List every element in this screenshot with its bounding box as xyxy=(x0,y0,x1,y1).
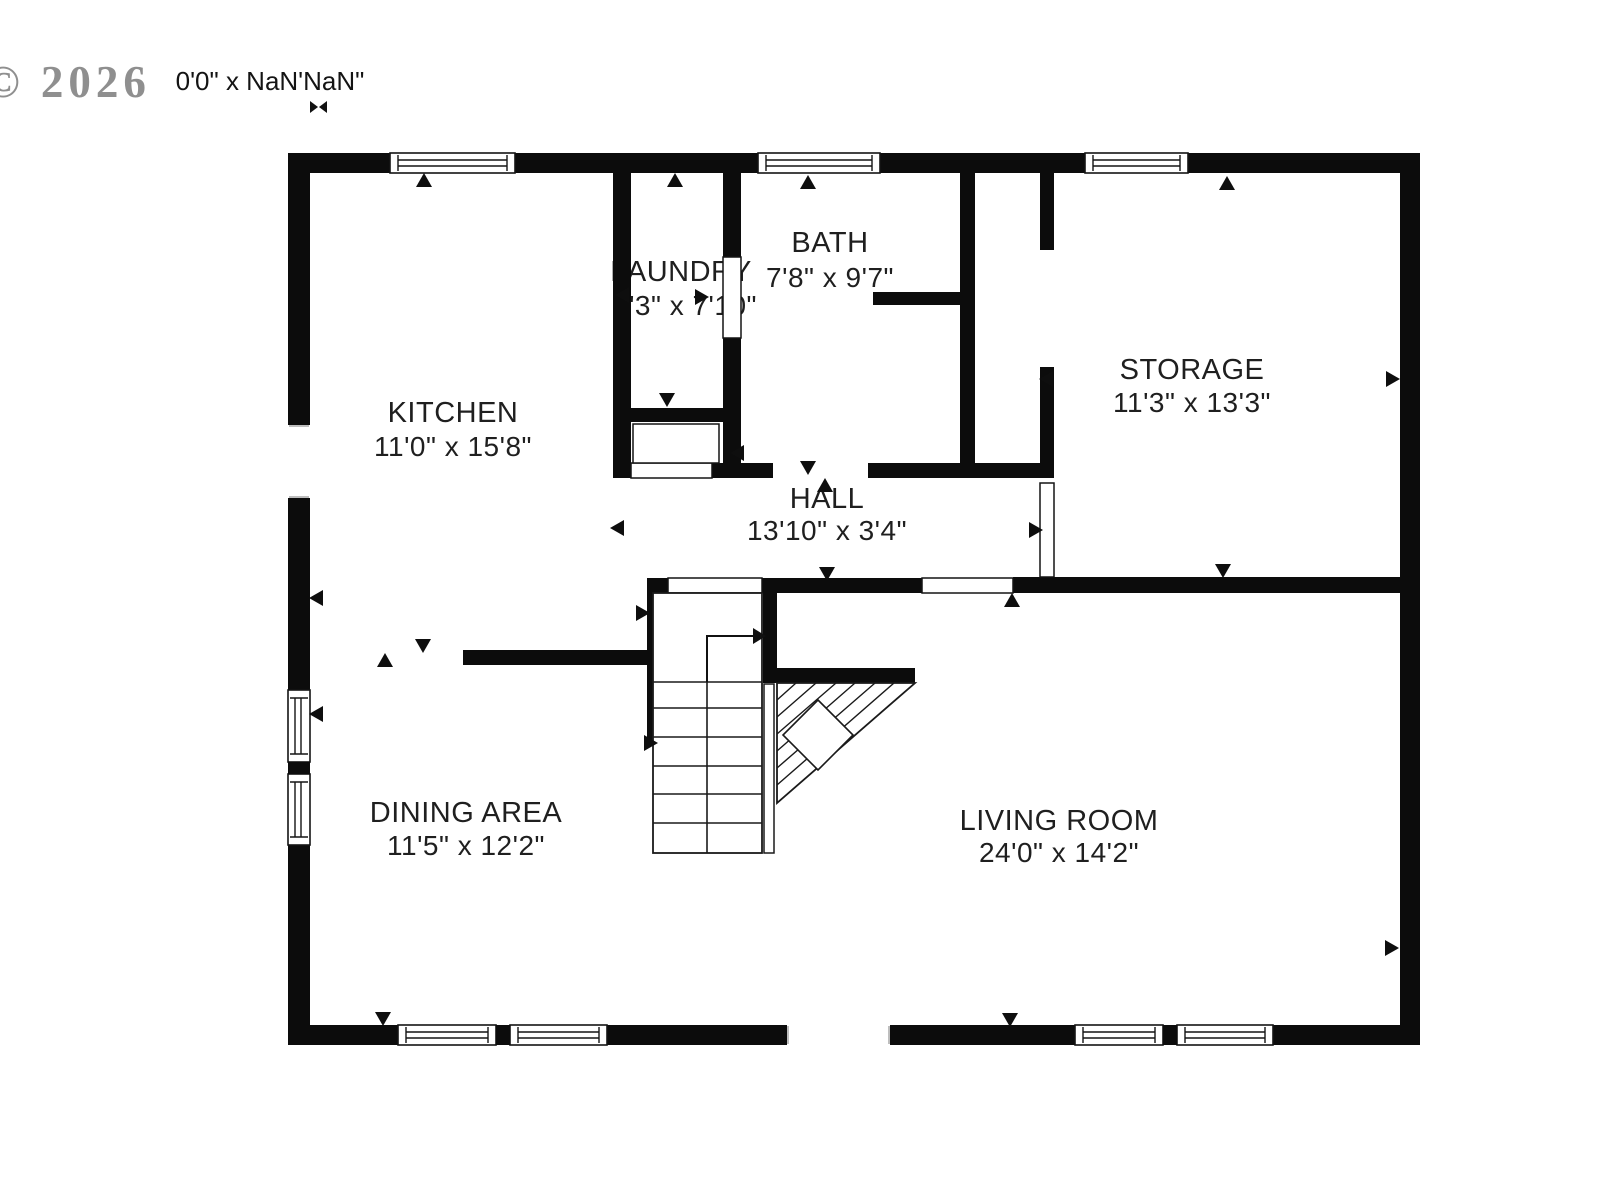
room-name-label: STORAGE xyxy=(1120,354,1265,386)
dimension-marker-down xyxy=(659,393,675,407)
dimension-marker-right xyxy=(1385,940,1399,956)
dimension-marker-up xyxy=(1004,593,1020,607)
dimension-marker-left xyxy=(309,590,323,606)
window xyxy=(390,153,515,173)
dimension-marker-left xyxy=(309,706,323,722)
dimension-marker-up xyxy=(1219,176,1235,190)
door-opening-frame xyxy=(723,257,741,338)
window xyxy=(288,774,310,845)
wall-segment xyxy=(288,498,310,690)
dimension-marker-down xyxy=(1002,1013,1018,1027)
room-labels: KITCHEN11'0" x 15'8"LAUNDRY7'3" x 7'10"B… xyxy=(370,227,1271,868)
wall-segment xyxy=(763,668,915,683)
wall-segment xyxy=(463,650,653,665)
wall-segment xyxy=(1273,1025,1420,1045)
wall-segment xyxy=(873,292,960,305)
wall-segment xyxy=(288,1025,398,1045)
dimension-marker-down xyxy=(800,461,816,475)
window-mullion xyxy=(1163,1025,1177,1045)
window-mullion xyxy=(496,1025,510,1045)
dimension-marker-up xyxy=(416,173,432,187)
wall-segment xyxy=(613,173,631,478)
floorplan-canvas: © 2026 0'0" x NaN'NaN" KITCHEN11'0" x 15… xyxy=(0,0,1600,1200)
door-opening-frame xyxy=(633,424,719,463)
wall-segment xyxy=(1400,173,1420,1025)
door-opening-frame xyxy=(631,463,712,478)
wall-segment xyxy=(960,173,975,478)
dimension-marker-down xyxy=(1215,564,1231,578)
wall-segment xyxy=(288,173,310,425)
window xyxy=(510,1025,607,1045)
dimension-marker-left xyxy=(610,520,624,536)
dimension-marker-up xyxy=(667,173,683,187)
room-dims-label: 24'0" x 14'2" xyxy=(979,837,1139,868)
wall-segment xyxy=(880,153,1085,173)
room-dims-label: 11'5" x 12'2" xyxy=(387,830,545,861)
wall-segment xyxy=(712,463,773,478)
wall-segment xyxy=(762,578,922,593)
stairs-layer xyxy=(653,593,915,853)
door-opening-frame xyxy=(668,578,762,593)
wall-segment xyxy=(890,1025,1075,1045)
wall-segment xyxy=(1188,153,1420,173)
dimension-marker-right xyxy=(1386,371,1400,387)
markers-layer xyxy=(309,173,1400,1027)
dimension-marker-down xyxy=(415,639,431,653)
floorplan-drawing: KITCHEN11'0" x 15'8"LAUNDRY7'3" x 7'10"B… xyxy=(0,0,1600,1200)
room-dims-label: 11'3" x 13'3" xyxy=(1113,387,1271,418)
room-name-label: DINING AREA xyxy=(370,797,563,829)
wall-segment xyxy=(1013,577,1400,593)
room-dims-label: 7'8" x 9'7" xyxy=(766,262,894,293)
window xyxy=(1085,153,1188,173)
wall-segment xyxy=(288,153,390,173)
window xyxy=(288,690,310,762)
wall-segment xyxy=(868,463,1054,478)
room-dims-label: 11'0" x 15'8" xyxy=(374,431,532,462)
door-opening-frame xyxy=(922,578,1013,593)
room-name-label: BATH xyxy=(791,227,868,259)
wall-segment xyxy=(1040,173,1054,250)
dimension-marker-up xyxy=(800,175,816,189)
room-name-label: KITCHEN xyxy=(388,397,519,429)
wall-segment xyxy=(288,845,310,1025)
window xyxy=(758,153,880,173)
wall-segment xyxy=(607,1025,787,1045)
wall-segment xyxy=(631,408,723,422)
window xyxy=(1177,1025,1273,1045)
stair-rail xyxy=(764,684,774,853)
room-name-label: LIVING ROOM xyxy=(960,805,1159,837)
room-dims-label: 13'10" x 3'4" xyxy=(747,515,907,546)
window xyxy=(398,1025,496,1045)
wall-segment xyxy=(515,153,758,173)
wall-segment xyxy=(723,173,741,257)
dimension-marker-down xyxy=(375,1012,391,1026)
window xyxy=(1075,1025,1163,1045)
dimension-marker-up xyxy=(377,653,393,667)
wall-segment xyxy=(647,578,668,593)
window-mullion xyxy=(288,762,310,774)
